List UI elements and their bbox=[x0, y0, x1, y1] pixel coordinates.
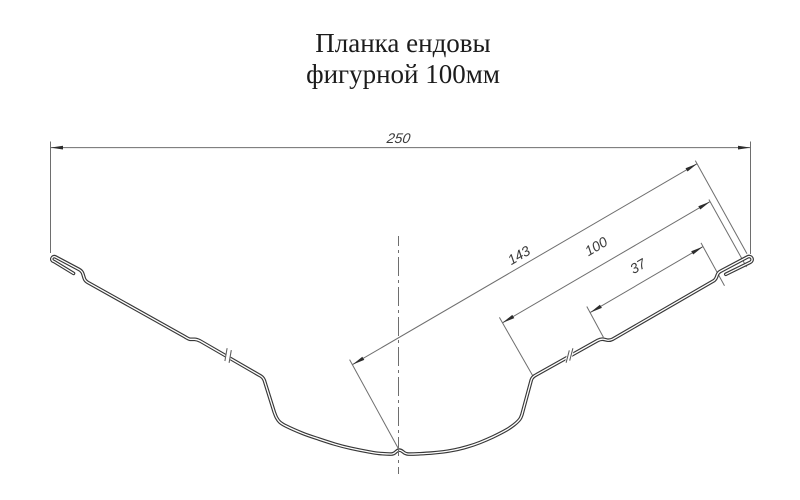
svg-text:37: 37 bbox=[627, 255, 650, 277]
svg-text:250: 250 bbox=[385, 130, 412, 146]
svg-text:143: 143 bbox=[505, 242, 533, 268]
svg-text:100: 100 bbox=[582, 233, 610, 259]
